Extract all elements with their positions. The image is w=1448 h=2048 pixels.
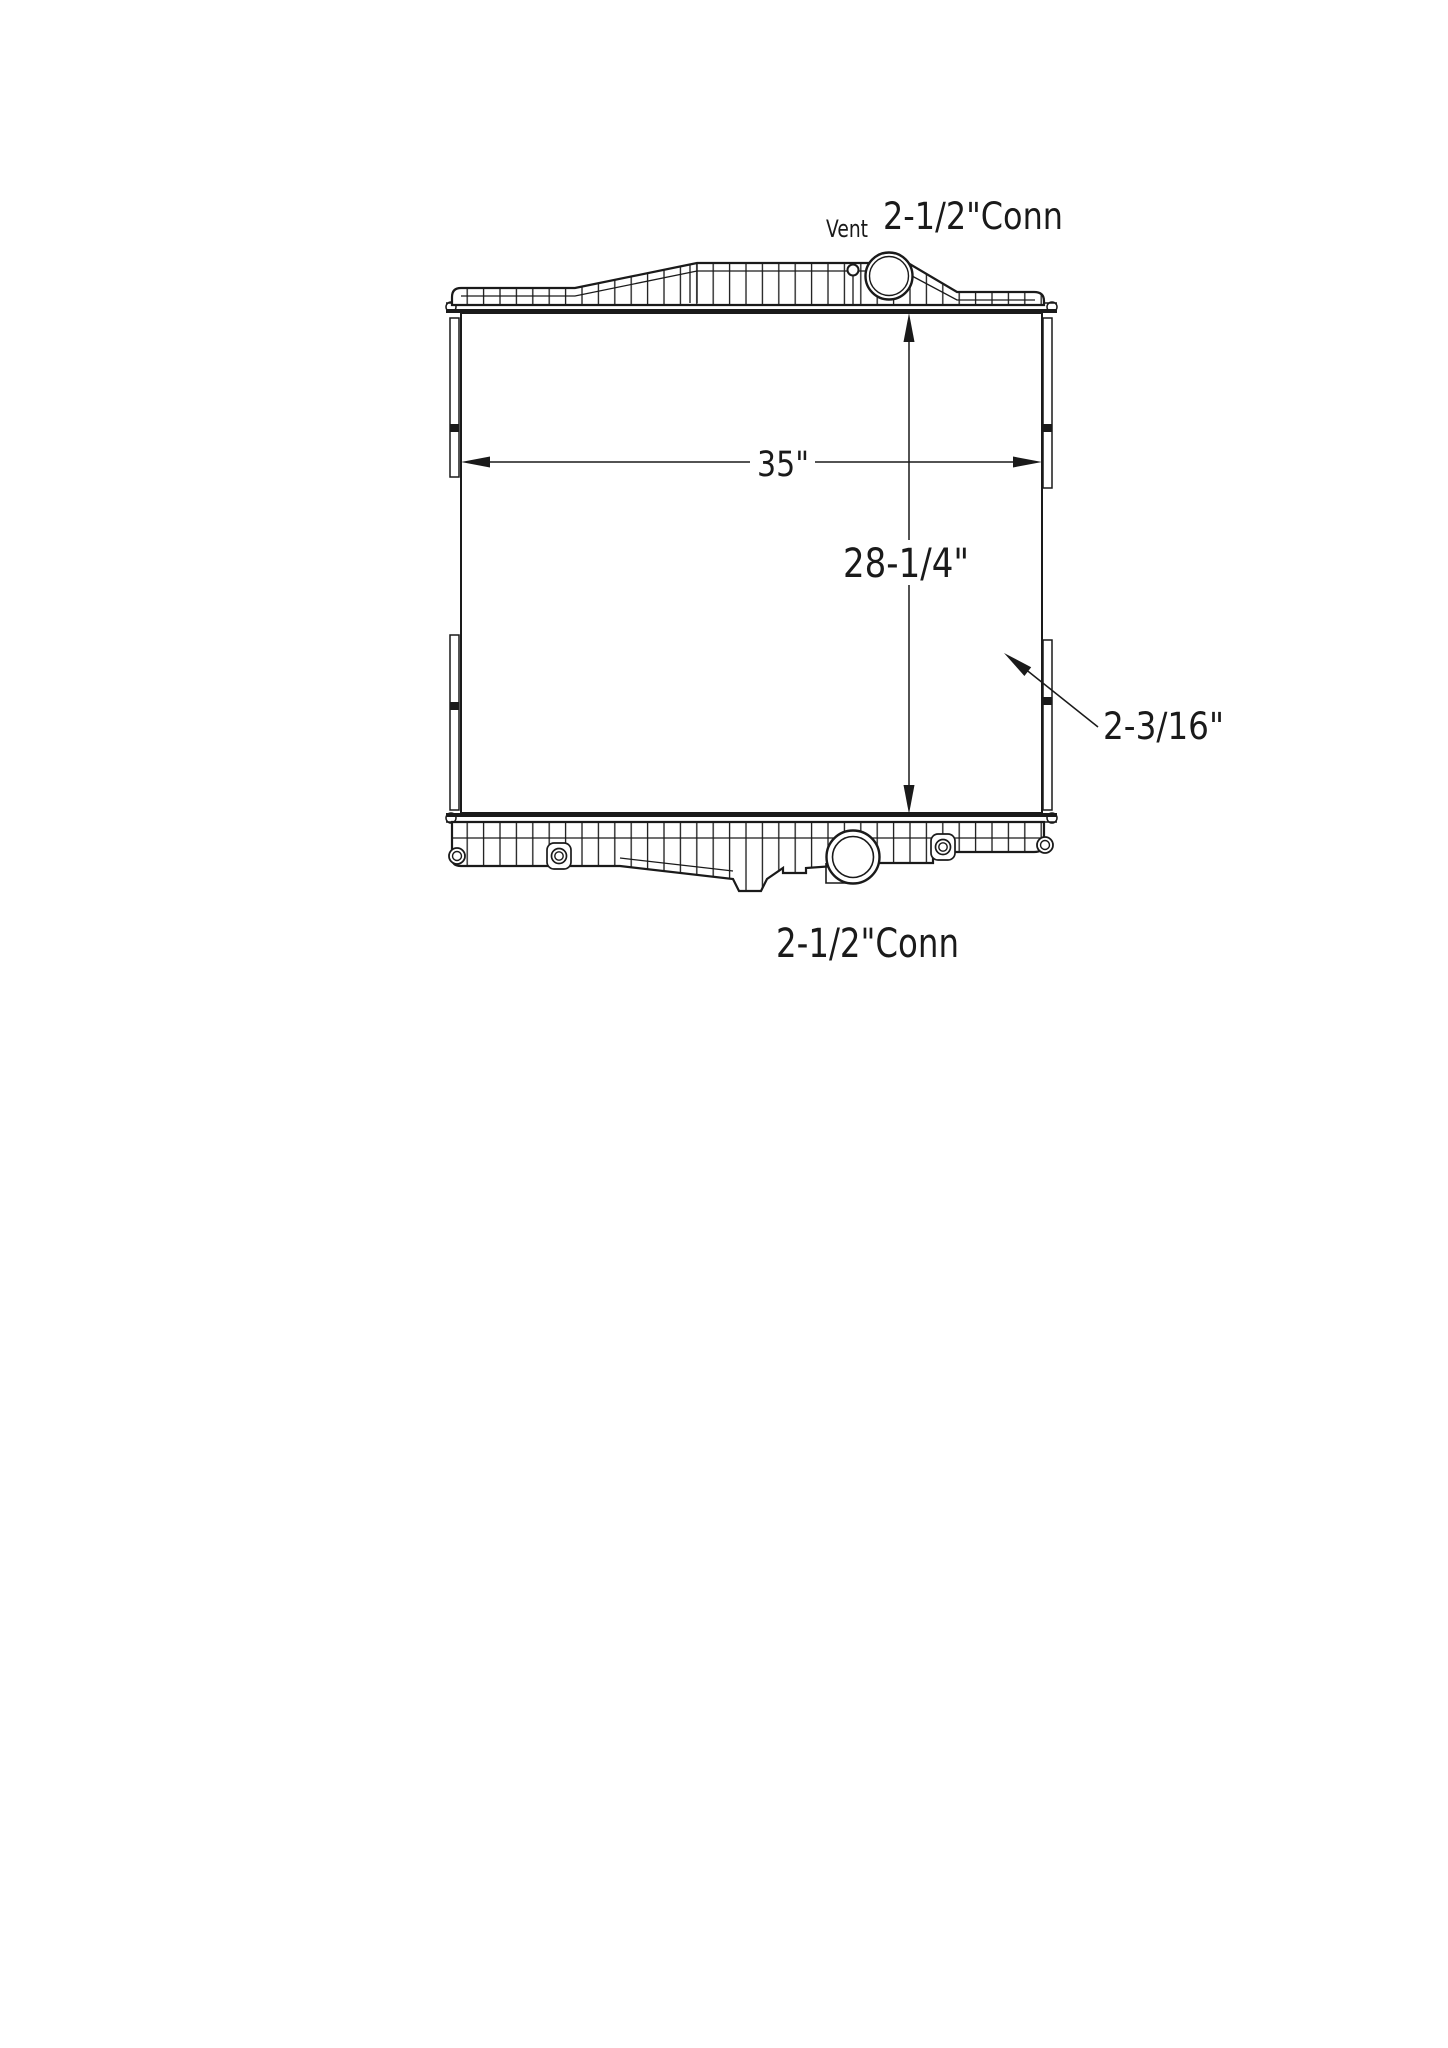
right-lower-side-channel xyxy=(1043,640,1052,810)
leader-arrowhead xyxy=(1004,653,1031,676)
left-upper-side-channel xyxy=(450,318,459,477)
mounting-hole xyxy=(1037,837,1053,853)
left-lower-channel-notch xyxy=(450,702,459,710)
vent-hole xyxy=(848,265,859,276)
left-lower-side-channel xyxy=(450,635,459,810)
radiator-technical-drawing: 35" 28-1/4" 2-3/16" Vent 2-1/2"Conn 2-1/… xyxy=(0,0,1448,2048)
mounting-hole xyxy=(449,848,465,864)
left-arrowhead xyxy=(461,457,490,468)
bottom-tank-outline xyxy=(452,822,1044,891)
vent-label: Vent xyxy=(826,215,868,243)
mounting-hole xyxy=(936,840,951,855)
right-lower-channel-notch xyxy=(1043,697,1052,705)
top-tank xyxy=(452,253,1044,306)
top-connection-label: 2-1/2"Conn xyxy=(883,195,1063,238)
top-connection-neck xyxy=(866,253,913,300)
right-upper-channel-notch xyxy=(1043,424,1052,432)
width-dimension: 35" xyxy=(461,445,1042,485)
height-dimension-label: 28-1/4" xyxy=(843,541,969,587)
core-depth-label: 2-3/16" xyxy=(1103,705,1224,748)
drawing-page: 35" 28-1/4" 2-3/16" Vent 2-1/2"Conn 2-1/… xyxy=(0,0,1448,2048)
mounting-hole xyxy=(552,849,567,864)
bottom-connection-label: 2-1/2"Conn xyxy=(776,921,959,967)
height-dimension: 28-1/4" xyxy=(843,313,969,814)
up-arrowhead xyxy=(904,313,915,342)
bottom-tank xyxy=(452,822,1044,891)
right-arrowhead xyxy=(1013,457,1042,468)
bottom-connection-neck xyxy=(827,831,880,884)
right-upper-side-channel xyxy=(1043,318,1052,488)
core-depth-leader: 2-3/16" xyxy=(1004,653,1224,748)
width-dimension-label: 35" xyxy=(757,445,809,485)
left-upper-channel-notch xyxy=(450,424,459,432)
down-arrowhead xyxy=(904,785,915,814)
